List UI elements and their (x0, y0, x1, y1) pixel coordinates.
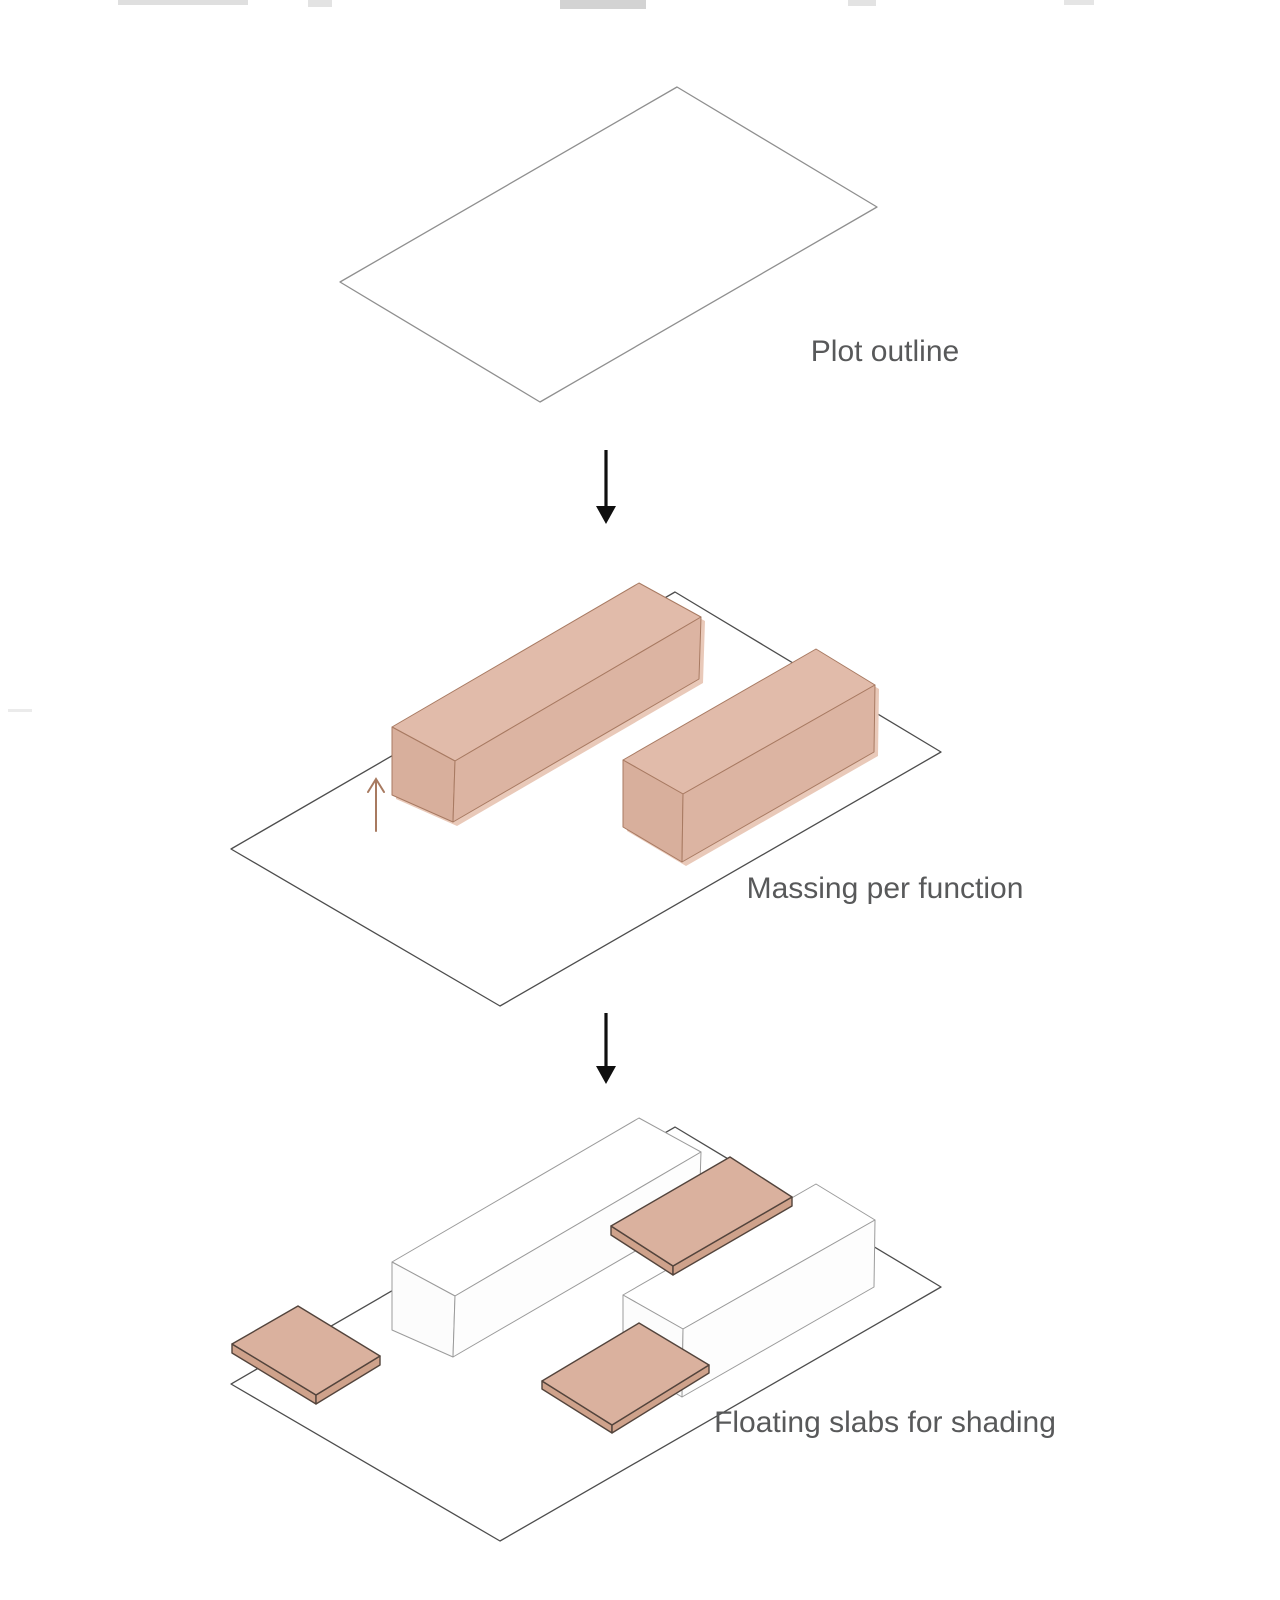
crop-artifact (1064, 0, 1094, 5)
down-arrow-head (596, 1066, 616, 1084)
crop-artifact (8, 709, 32, 712)
shading-slab-left (232, 1306, 380, 1404)
down-arrow-icon (596, 1013, 616, 1084)
crop-artifact (560, 0, 646, 9)
crop-artifact (308, 0, 332, 7)
step-plot-outline: Plot outline (340, 87, 959, 402)
diagram-page: Plot outline Massing per function (0, 0, 1280, 1600)
massing-label: Massing per function (747, 872, 1024, 905)
down-arrow-icon (596, 450, 616, 524)
crop-artifact (848, 0, 876, 6)
crop-artifact (118, 0, 248, 5)
step-massing: Massing per function (231, 583, 1023, 1006)
plot-outline-shape (340, 87, 877, 402)
shading-slab-left-top (232, 1306, 380, 1395)
plot-outline-label: Plot outline (811, 335, 959, 368)
down-arrow-head (596, 506, 616, 524)
diagram-canvas: Plot outline Massing per function (0, 0, 1280, 1600)
step-floating-slabs: Floating slabs for shading (231, 1118, 1056, 1541)
up-arrow-icon (368, 779, 384, 831)
floating-slabs-label: Floating slabs for shading (714, 1406, 1056, 1439)
